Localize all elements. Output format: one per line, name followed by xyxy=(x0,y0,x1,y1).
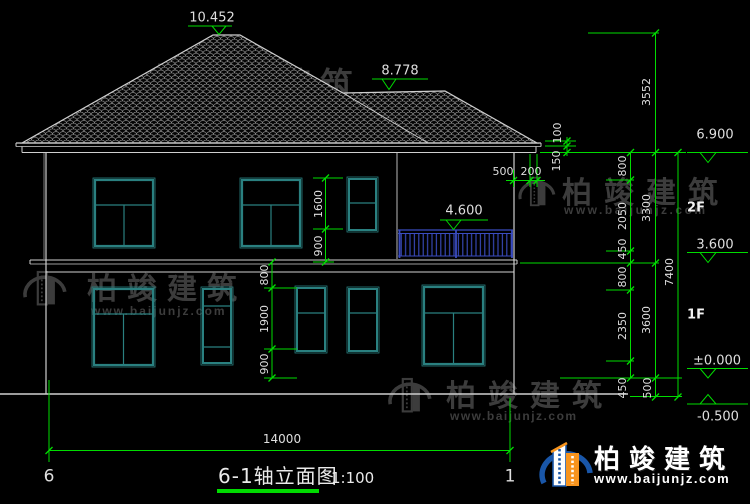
brand-logo-icon xyxy=(536,433,594,497)
window-1f-tall xyxy=(201,287,233,365)
dim-total-14000: 14000 xyxy=(263,432,301,446)
axis-number-left: 6 xyxy=(44,466,55,486)
roof-tile-hatch xyxy=(22,35,537,143)
window-1f-right xyxy=(422,285,485,366)
dim-1f-1900: 1900 xyxy=(258,305,271,333)
elevation-linework: 10.452 8.778 6.900 4.600 3.600 ±0.000 -0… xyxy=(0,0,750,504)
cad-elevation-drawing: 柏竣建筑 www.baijunjz.com 柏竣建筑 www.baijunjz.… xyxy=(0,0,750,504)
window-2f-left xyxy=(93,178,155,248)
level-eave: 6.900 xyxy=(696,128,733,143)
level-ground: -0.500 xyxy=(697,410,739,425)
dim-rm-3600: 3600 xyxy=(640,306,653,334)
brand-url: www.baijunjz.com xyxy=(594,471,730,486)
dim-1f-800: 800 xyxy=(258,265,271,286)
eave-fascia xyxy=(16,143,541,153)
window-2f-middle xyxy=(240,178,302,248)
drawing-scale: 1:100 xyxy=(331,469,374,487)
dim-ro-7400: 7400 xyxy=(663,258,676,286)
level-ridge: 10.452 xyxy=(189,11,235,26)
window-2f-small xyxy=(347,177,378,232)
title-underline xyxy=(217,489,319,493)
dim-ri-450b: 450 xyxy=(616,378,629,399)
level-secondary-ridge: 8.778 xyxy=(381,64,418,79)
window-1f-mid-b xyxy=(347,287,379,353)
dim-ri-450a: 450 xyxy=(616,239,629,260)
brand-logo: 柏竣建筑 www.baijunjz.com xyxy=(536,433,750,499)
dim-1f-900: 900 xyxy=(258,354,271,375)
level-balcony: 4.600 xyxy=(445,204,482,219)
balcony-railing xyxy=(398,230,513,258)
window-1f-mid-a xyxy=(295,286,327,353)
floor-label-1f: 1F xyxy=(687,308,705,323)
dim-ri-800a: 800 xyxy=(616,156,629,177)
drawing-title: 6-1轴立面图 xyxy=(218,464,338,488)
dim-ri-2350: 2350 xyxy=(616,312,629,340)
dim-rm-500: 500 xyxy=(641,378,654,399)
dim-rm-3300: 3300 xyxy=(640,194,653,222)
dim-ri-800b: 800 xyxy=(616,267,629,288)
dim-rm-3552: 3552 xyxy=(640,78,653,106)
axis-number-right: 1 xyxy=(505,466,516,486)
dim-eave-150: 150 xyxy=(550,151,563,172)
dim-eave-100: 100 xyxy=(551,123,564,144)
level-zero: ±0.000 xyxy=(693,354,741,369)
dim-eave-200: 200 xyxy=(521,165,542,178)
dim-2f-1600: 1600 xyxy=(312,190,325,218)
floor-label-2f: 2F xyxy=(687,201,705,216)
dim-2f-900: 900 xyxy=(312,236,325,257)
dim-ri-2050: 2050 xyxy=(616,202,629,230)
hip-roof xyxy=(22,35,537,143)
level-floor2: 3.600 xyxy=(696,238,733,253)
window-1f-left xyxy=(92,287,155,367)
dim-eave-500: 500 xyxy=(493,165,514,178)
